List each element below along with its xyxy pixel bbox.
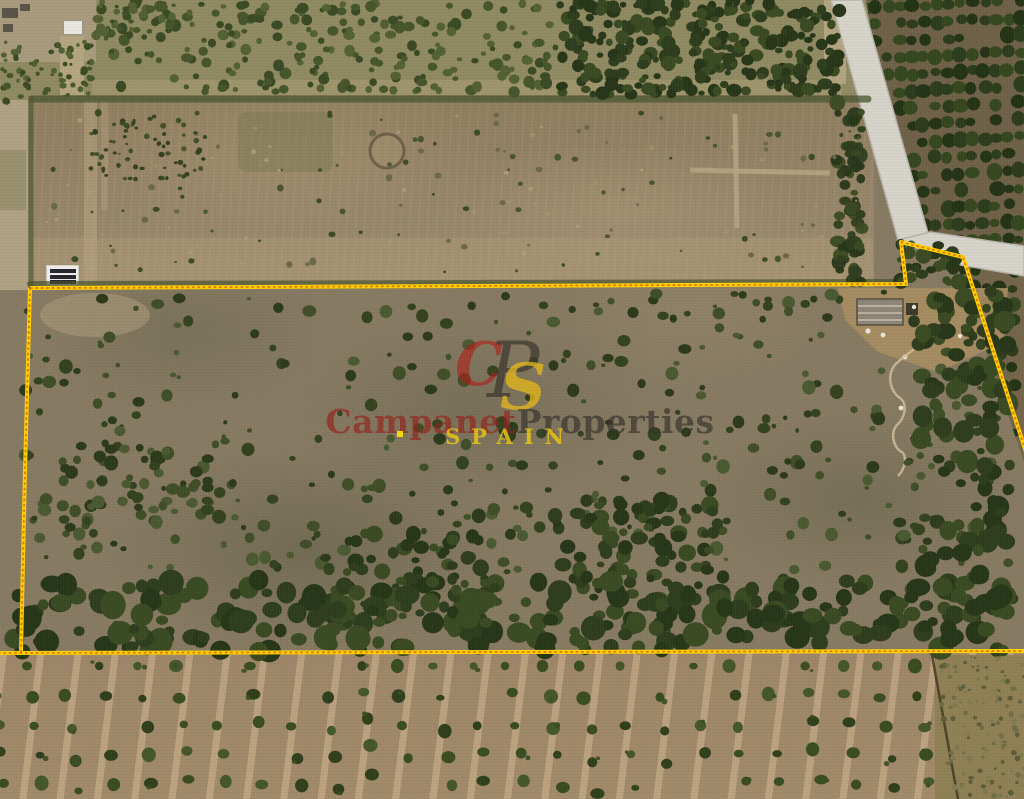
- bush-texture-group: [89, 111, 208, 182]
- scrub-texture-group: [939, 656, 1024, 799]
- satellite-photo: C P S CampanetProperties SPAIN: [0, 0, 1024, 799]
- tree-texture-group: [4, 570, 1018, 663]
- tree-texture-group: [829, 95, 868, 287]
- farmyard: [40, 288, 1008, 476]
- tree-texture-group: [93, 0, 847, 100]
- outbuilding: [906, 303, 918, 315]
- watermark-dot: [397, 431, 403, 437]
- tree-texture-group: [0, 659, 934, 799]
- scene-overlay: [0, 0, 1024, 799]
- field-marks: [370, 114, 830, 228]
